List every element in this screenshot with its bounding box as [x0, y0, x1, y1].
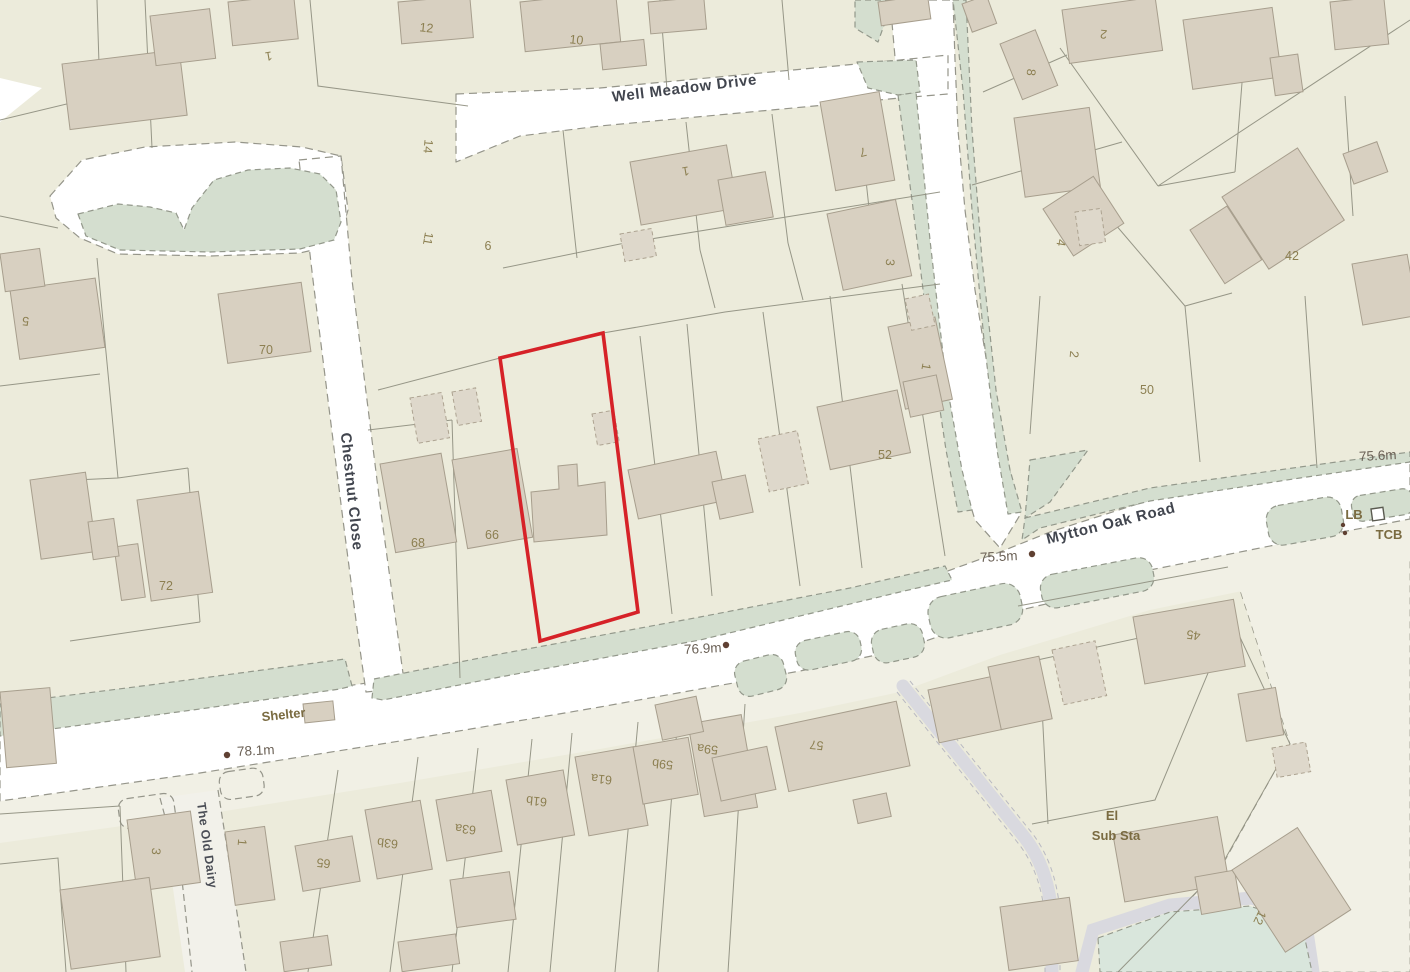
house-number-label: 57: [809, 737, 824, 752]
building: [600, 39, 646, 69]
building: [1352, 254, 1410, 325]
building: [1000, 897, 1078, 970]
house-number-label: 3: [149, 847, 164, 855]
house-number-label: 68: [411, 536, 425, 550]
building: [1238, 687, 1284, 741]
building: [150, 9, 216, 66]
house-number-label: 72: [159, 579, 173, 593]
benchmark-dot-icon: [723, 642, 729, 648]
map-canvas: Well Meadow DriveChestnut CloseMytton Oa…: [0, 0, 1410, 972]
house-number-label: 61a: [590, 771, 612, 787]
house-number-label: 45: [1186, 627, 1202, 643]
building: [1195, 870, 1241, 914]
house-number-label: 3: [883, 258, 898, 266]
building: [280, 935, 332, 971]
poi-label: LB: [1345, 507, 1362, 522]
benchmark-dot-icon: [224, 752, 230, 758]
house-number-label: 8: [1024, 68, 1039, 76]
building: [718, 172, 773, 226]
spot-height-label: 75.5m: [980, 548, 1018, 565]
building: [0, 688, 56, 768]
lb-dot-icon: [1343, 531, 1347, 535]
building: [648, 0, 707, 34]
building: [1330, 0, 1389, 50]
building: [0, 248, 45, 291]
house-number-label: 52: [878, 448, 892, 462]
house-number-label: 66: [485, 528, 499, 542]
house-number-label: 42: [1285, 249, 1299, 263]
house-number-label: 63a: [454, 821, 476, 837]
house-number-label: 61b: [525, 793, 547, 809]
poi-label: Sub Sta: [1092, 828, 1141, 843]
house-number-label: 12: [419, 20, 434, 35]
building: [228, 0, 298, 46]
building: [30, 472, 97, 559]
lb-dot-icon: [1341, 523, 1345, 527]
house-number-label: 14: [420, 139, 435, 154]
spot-height-label: 78.1m: [237, 742, 275, 759]
building: [60, 877, 160, 969]
building: [398, 0, 473, 44]
outbuilding: [452, 388, 482, 426]
house-number-label: 63b: [376, 835, 398, 851]
house-number-label: 11: [420, 231, 436, 246]
house-number-label: 10: [569, 32, 584, 47]
poi-label: El: [1106, 808, 1118, 823]
poi-label: TCB: [1376, 527, 1403, 542]
os-base-map: Well Meadow DriveChestnut CloseMytton Oa…: [0, 0, 1410, 972]
building: [1270, 54, 1303, 96]
house-number-label: 1: [235, 838, 250, 846]
outbuilding: [620, 228, 656, 261]
building: [903, 375, 944, 417]
building: [450, 872, 516, 928]
building: [88, 518, 119, 559]
outbuilding: [1075, 208, 1105, 245]
spot-height-label: 75.6m: [1359, 447, 1397, 464]
house-number-label: 50: [1140, 383, 1154, 397]
shelter-building: [303, 701, 335, 723]
house-number-label: 6: [485, 239, 492, 253]
spot-height-label: 76.9m: [684, 640, 722, 657]
house-number-label: 59b: [651, 756, 673, 772]
building: [712, 475, 753, 519]
house-number-label: 65: [316, 855, 331, 870]
benchmark-dot-icon: [1029, 551, 1035, 557]
house-number-label: 2: [1067, 350, 1082, 358]
tcb-icon: [1371, 507, 1385, 521]
house-number-label: 59a: [696, 741, 718, 757]
house-number-label: 70: [259, 343, 273, 357]
building: [1183, 7, 1282, 89]
outbuilding: [1272, 742, 1311, 777]
